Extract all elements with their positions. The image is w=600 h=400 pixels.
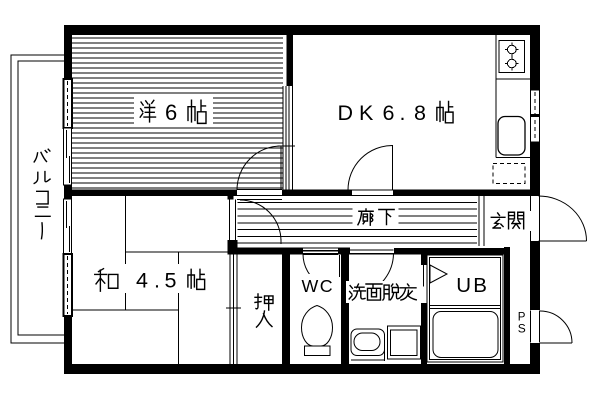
svg-text:U: U [456, 274, 471, 297]
svg-text:4: 4 [136, 269, 148, 293]
svg-text:C: C [320, 276, 333, 296]
svg-text:.: . [154, 269, 160, 293]
svg-text:6: 6 [165, 100, 177, 125]
svg-text:W: W [302, 276, 319, 296]
svg-text:B: B [473, 274, 487, 297]
svg-text:8: 8 [414, 101, 426, 125]
svg-text:.: . [400, 101, 406, 125]
svg-text:K: K [359, 101, 374, 125]
svg-text:6: 6 [383, 101, 395, 125]
svg-text:S: S [518, 322, 526, 336]
svg-text:5: 5 [165, 269, 177, 293]
svg-text:D: D [338, 101, 354, 125]
